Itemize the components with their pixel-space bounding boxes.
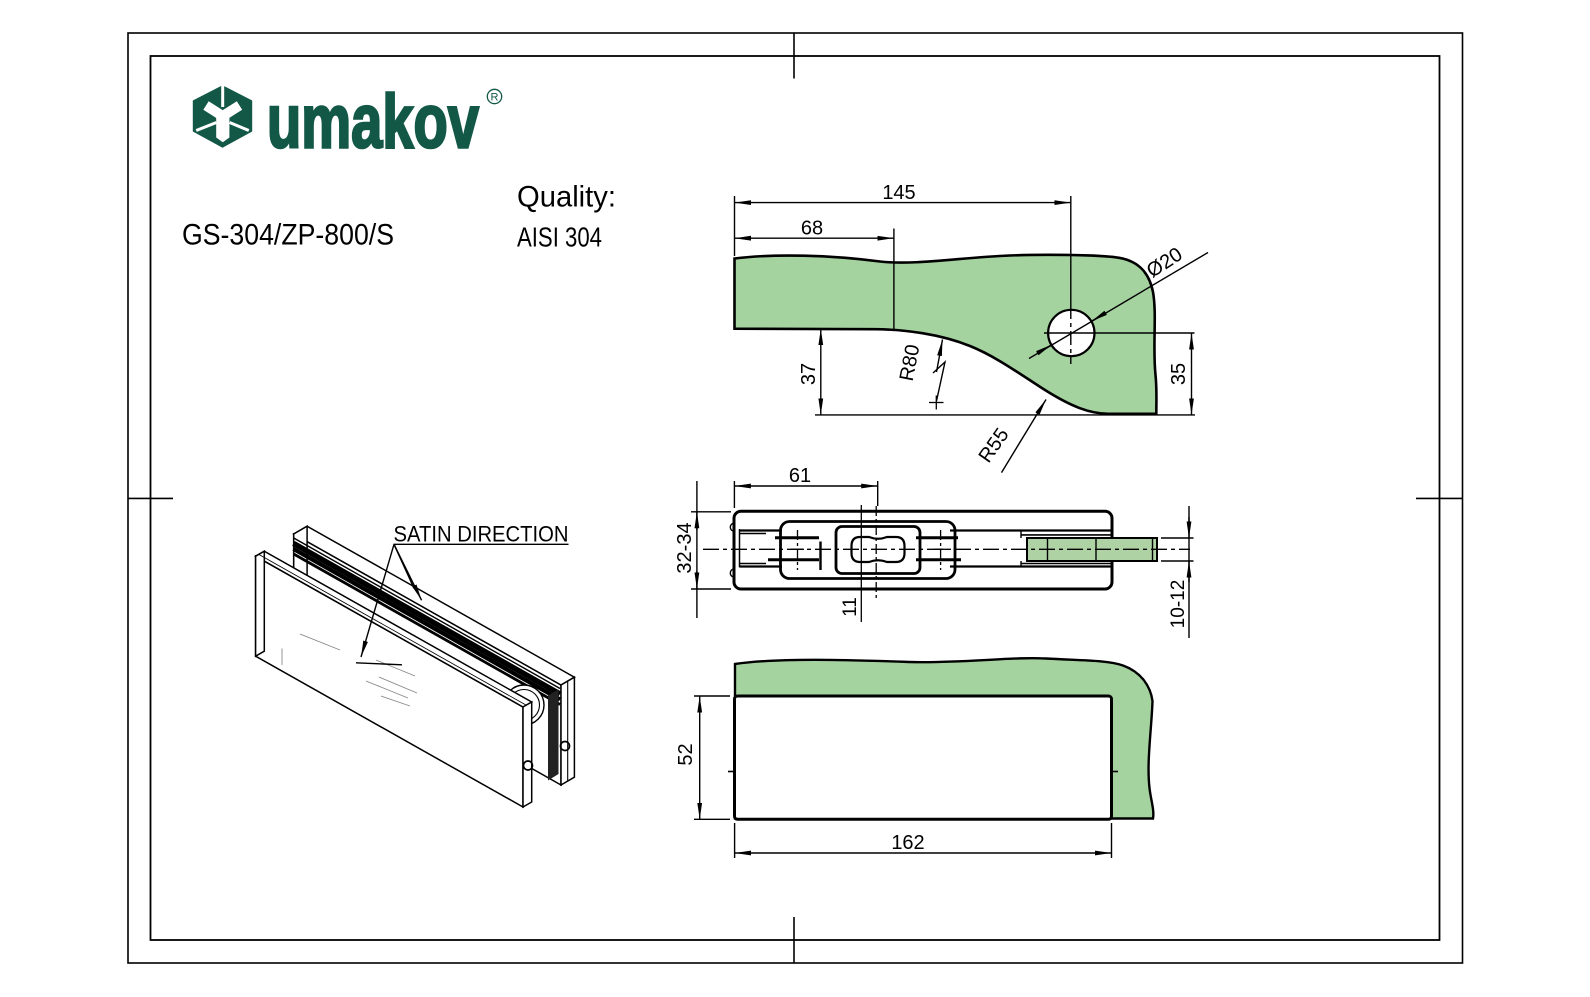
svg-text:10-12: 10-12 bbox=[1168, 580, 1189, 629]
svg-text:R: R bbox=[491, 92, 499, 104]
svg-text:35: 35 bbox=[1168, 363, 1190, 385]
svg-text:68: 68 bbox=[801, 218, 823, 240]
svg-text:32-34: 32-34 bbox=[674, 522, 696, 573]
svg-text:162: 162 bbox=[891, 832, 924, 854]
svg-text:umakov: umakov bbox=[267, 80, 479, 165]
svg-text:Quality:: Quality: bbox=[517, 181, 616, 214]
svg-text:145: 145 bbox=[882, 182, 915, 204]
svg-text:61: 61 bbox=[789, 465, 811, 487]
svg-text:AISI 304: AISI 304 bbox=[517, 222, 602, 253]
svg-text:37: 37 bbox=[798, 363, 820, 385]
svg-text:SATIN DIRECTION: SATIN DIRECTION bbox=[394, 522, 569, 547]
svg-text:GS-304/ZP-800/S: GS-304/ZP-800/S bbox=[182, 219, 394, 252]
svg-text:52: 52 bbox=[675, 743, 697, 765]
svg-text:11: 11 bbox=[840, 597, 861, 617]
